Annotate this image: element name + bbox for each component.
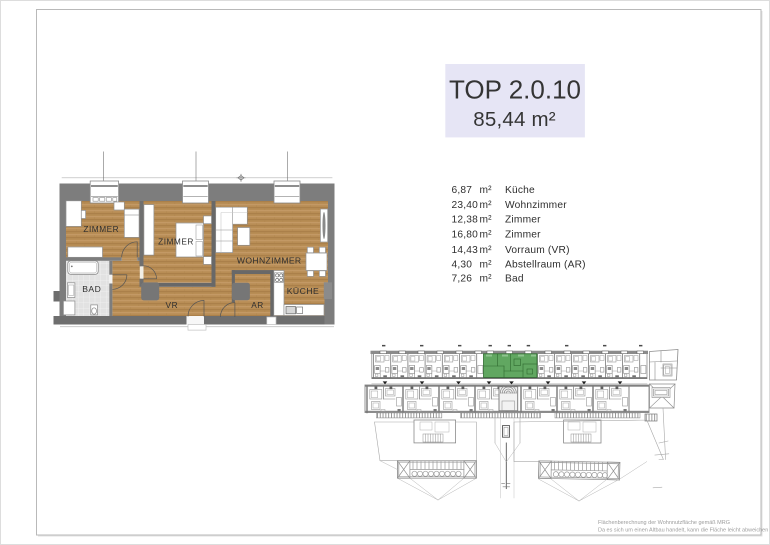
svg-text:23,40: 23,40	[452, 200, 479, 211]
svg-text:Küche: Küche	[505, 185, 535, 196]
svg-text:AR: AR	[251, 300, 264, 310]
svg-text:m²: m²	[480, 260, 493, 271]
svg-text:6,87: 6,87	[452, 185, 473, 196]
svg-text:Vorraum (VR): Vorraum (VR)	[505, 245, 570, 256]
svg-text:4,30: 4,30	[452, 260, 473, 271]
svg-text:VR: VR	[166, 300, 179, 310]
svg-text:85,44 m²: 85,44 m²	[473, 108, 556, 131]
svg-text:m²: m²	[480, 245, 493, 256]
svg-text:ZIMMER: ZIMMER	[158, 236, 194, 246]
svg-text:Zimmer: Zimmer	[505, 229, 541, 240]
svg-text:m²: m²	[480, 215, 493, 226]
svg-text:Wohnzimmer: Wohnzimmer	[505, 200, 567, 211]
svg-text:Da es sich um einen Altbau han: Da es sich um einen Altbau handelt, kann…	[598, 528, 768, 534]
svg-text:7,26: 7,26	[452, 273, 473, 284]
svg-text:TOP 2.0.10: TOP 2.0.10	[449, 75, 581, 105]
svg-text:Bad: Bad	[505, 273, 524, 284]
svg-text:16,80: 16,80	[452, 229, 479, 240]
svg-text:Zimmer: Zimmer	[505, 215, 541, 226]
svg-text:12,38: 12,38	[452, 215, 479, 226]
svg-text:m²: m²	[480, 185, 493, 196]
svg-text:KÜCHE: KÜCHE	[287, 286, 320, 296]
svg-text:14,43: 14,43	[452, 245, 479, 256]
svg-text:WOHNZIMMER: WOHNZIMMER	[237, 256, 302, 266]
svg-text:BAD: BAD	[82, 284, 101, 294]
svg-text:ZIMMER: ZIMMER	[83, 224, 119, 234]
svg-text:m²: m²	[480, 200, 493, 211]
svg-text:Flächenberechnung der Wohnnutz: Flächenberechnung der Wohnnutzfläche gem…	[598, 520, 730, 526]
svg-text:m²: m²	[480, 229, 493, 240]
svg-text:m²: m²	[480, 273, 493, 284]
svg-text:Abstellraum (AR): Abstellraum (AR)	[505, 260, 586, 271]
